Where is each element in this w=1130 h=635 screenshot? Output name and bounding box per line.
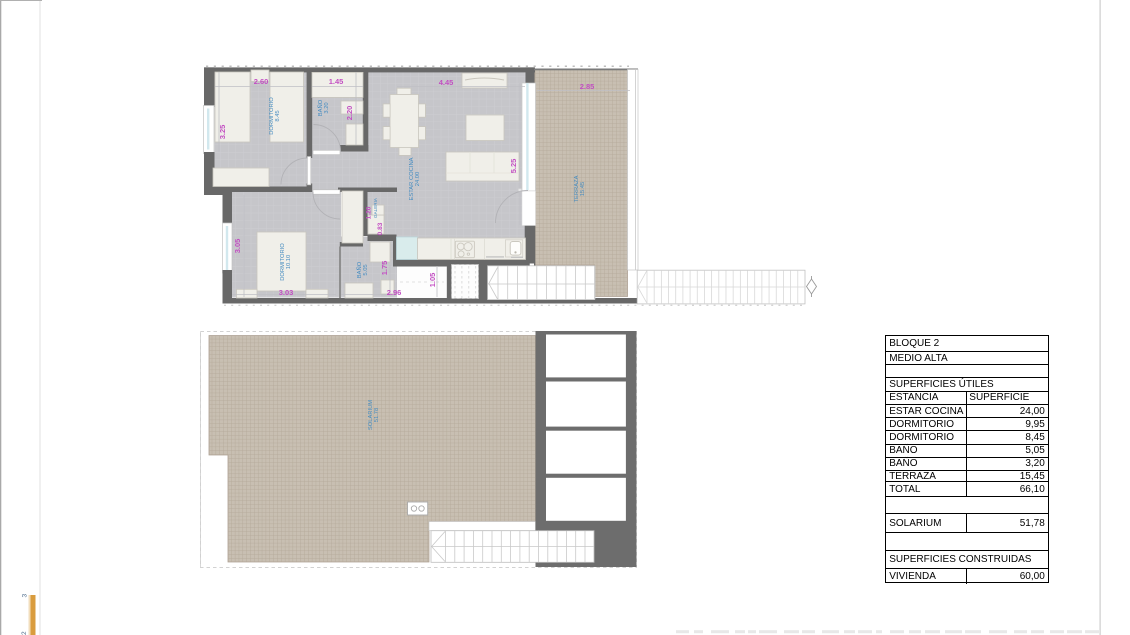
svg-text:2: 2 [21, 631, 28, 635]
svg-text:1.45: 1.45 [329, 77, 344, 86]
svg-text:1.05: 1.05 [428, 273, 437, 288]
svg-text:2.60: 2.60 [254, 77, 269, 86]
svg-text:3: 3 [22, 594, 29, 598]
svg-text:1.75: 1.75 [380, 261, 389, 276]
svg-text:3.03: 3.03 [279, 288, 294, 297]
svg-text:1.20: 1.20 [366, 206, 373, 219]
svg-text:5.25: 5.25 [509, 159, 518, 174]
svg-text:GALERIA: GALERIA [373, 197, 378, 218]
svg-text:3.25: 3.25 [218, 125, 227, 140]
svg-text:2.96: 2.96 [387, 288, 402, 297]
svg-text:3.05: 3.05 [233, 239, 242, 254]
svg-text:2.20: 2.20 [345, 106, 354, 121]
svg-text:2.85: 2.85 [580, 82, 595, 91]
svg-text:0.83: 0.83 [377, 222, 384, 235]
svg-text:4.45: 4.45 [439, 78, 454, 87]
